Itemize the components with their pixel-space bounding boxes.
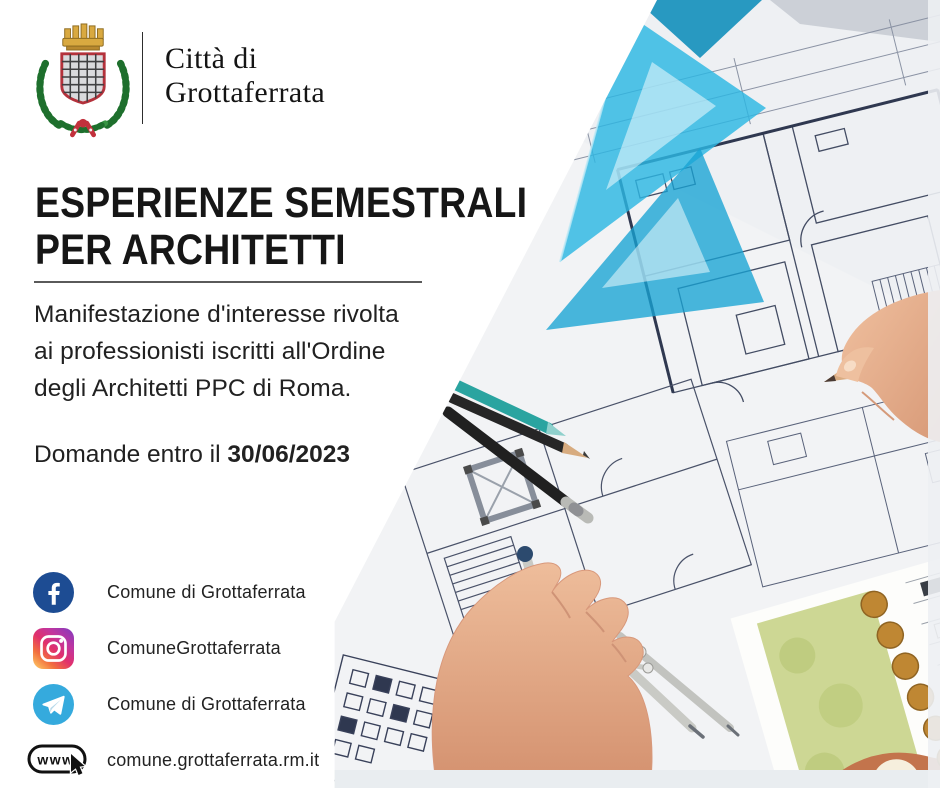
telegram-icon: [33, 684, 74, 725]
city-name: Città di Grottaferrata: [165, 42, 325, 109]
www-icon: www: [27, 740, 93, 781]
deadline-text: Domande entro il 30/06/2023: [34, 441, 350, 469]
telegram-link[interactable]: Comune di Grottaferrata: [33, 684, 319, 725]
city-name-line2: Grottaferrata: [165, 76, 325, 110]
page-title-line1: ESPERIENZE SEMESTRALI: [35, 180, 527, 227]
www-text: www: [36, 751, 74, 767]
description-line3: degli Architetti PPC di Roma.: [34, 371, 399, 408]
description-line1: Manifestazione d'interesse rivolta: [34, 297, 399, 334]
shield-icon: [62, 54, 104, 103]
facebook-handle: Comune di Grottaferrata: [107, 582, 306, 603]
grottaferrata-coat-of-arms: [30, 10, 136, 142]
instagram-handle: ComuneGrottaferrata: [107, 638, 281, 659]
deadline-prefix: Domande entro il: [34, 441, 227, 468]
crown-icon: [63, 24, 103, 50]
description-text: Manifestazione d'interesse rivolta ai pr…: [34, 297, 399, 407]
instagram-icon: [33, 628, 74, 669]
deadline-date: 30/06/2023: [227, 441, 350, 468]
website-url: comune.grottaferrata.rm.it: [107, 750, 319, 771]
page-title-line2: PER ARCHITETTI: [35, 227, 527, 274]
city-name-line1: Città di: [165, 42, 325, 76]
facebook-icon: [33, 572, 74, 613]
instagram-link[interactable]: ComuneGrottaferrata: [33, 628, 319, 669]
page-title: ESPERIENZE SEMESTRALI PER ARCHITETTI: [35, 180, 527, 275]
flyer-canvas: Città di Grottaferrata ESPERIENZE SEMEST…: [0, 0, 940, 788]
facebook-link[interactable]: Comune di Grottaferrata: [33, 572, 319, 613]
website-link[interactable]: www comune.grottaferrata.rm.it: [33, 740, 319, 781]
description-line2: ai professionisti iscritti all'Ordine: [34, 334, 399, 371]
header-branding: Città di Grottaferrata: [30, 10, 325, 142]
cursor-arrow-icon: [71, 754, 85, 775]
telegram-handle: Comune di Grottaferrata: [107, 694, 306, 715]
logo-divider: [142, 32, 143, 124]
contact-list: Comune di Grottaferrata: [33, 572, 319, 781]
title-separator: [34, 281, 422, 283]
